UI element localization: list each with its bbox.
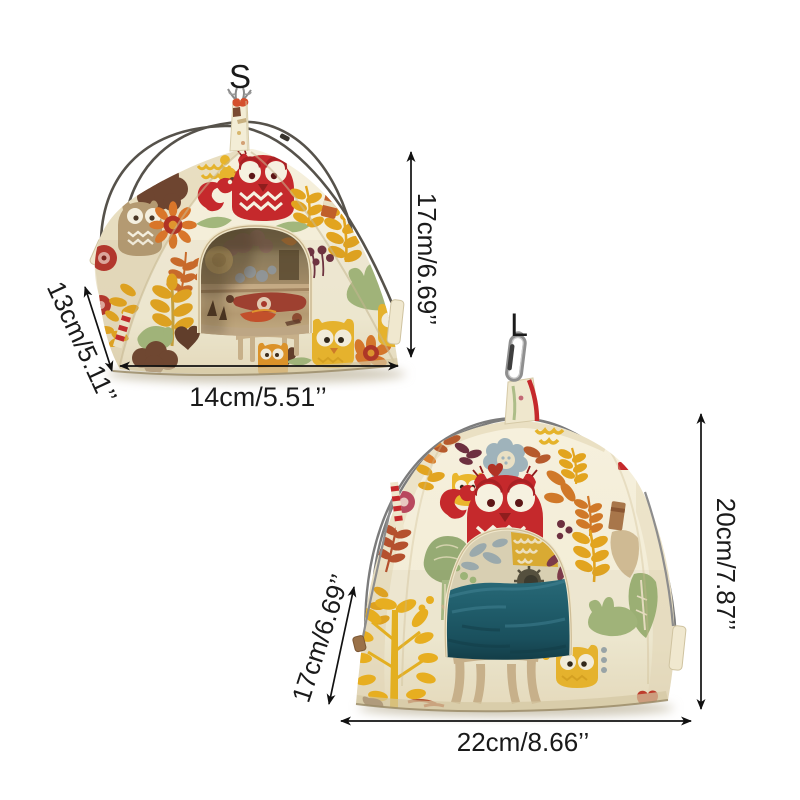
svg-text:14cm/5.51’’: 14cm/5.51’’: [189, 382, 327, 412]
svg-text:20cm/7.87’’: 20cm/7.87’’: [711, 498, 741, 631]
svg-text:S: S: [229, 58, 251, 95]
svg-text:L: L: [510, 307, 528, 343]
svg-text:22cm/8.66’’: 22cm/8.66’’: [457, 727, 590, 757]
svg-text:17cm/6.69’’: 17cm/6.69’’: [412, 193, 442, 326]
